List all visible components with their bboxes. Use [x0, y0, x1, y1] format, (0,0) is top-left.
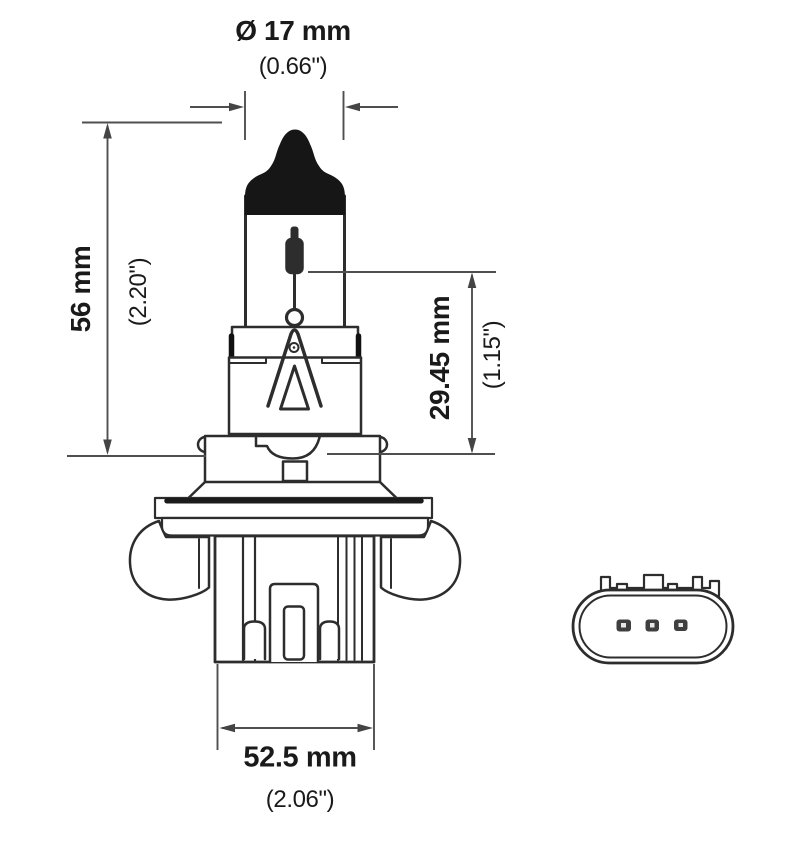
connector-pins — [617, 620, 688, 632]
dim-left-metric-label: 56 mm — [67, 246, 95, 333]
filament — [287, 228, 303, 326]
dim-right-imperial-label: (1.15") — [481, 321, 505, 389]
dim-bottom-metric-label: 52.5 mm — [243, 744, 356, 773]
dim-left-imperial-label: (2.20") — [127, 258, 151, 326]
black-tip — [245, 130, 345, 216]
dim-bottom-lines — [218, 664, 375, 750]
dim-bottom-imperial-label: (2.06") — [266, 788, 334, 812]
bulb-front-view — [130, 130, 460, 663]
bulb-dimension-diagram: Ø 17 mm (0.66") 56 mm (2.20") 29.45 mm (… — [0, 0, 800, 843]
dim-top-metric-label: Ø 17 mm — [235, 17, 350, 45]
connector-rear-view — [573, 575, 733, 663]
o-ring-flange — [189, 436, 396, 498]
socket-body — [215, 536, 374, 662]
mounting-flange — [155, 498, 432, 536]
dim-right-metric-label: 29.45 mm — [426, 296, 454, 420]
dim-top-imperial-label: (0.66") — [259, 55, 327, 79]
diagram-line-art — [0, 0, 800, 843]
